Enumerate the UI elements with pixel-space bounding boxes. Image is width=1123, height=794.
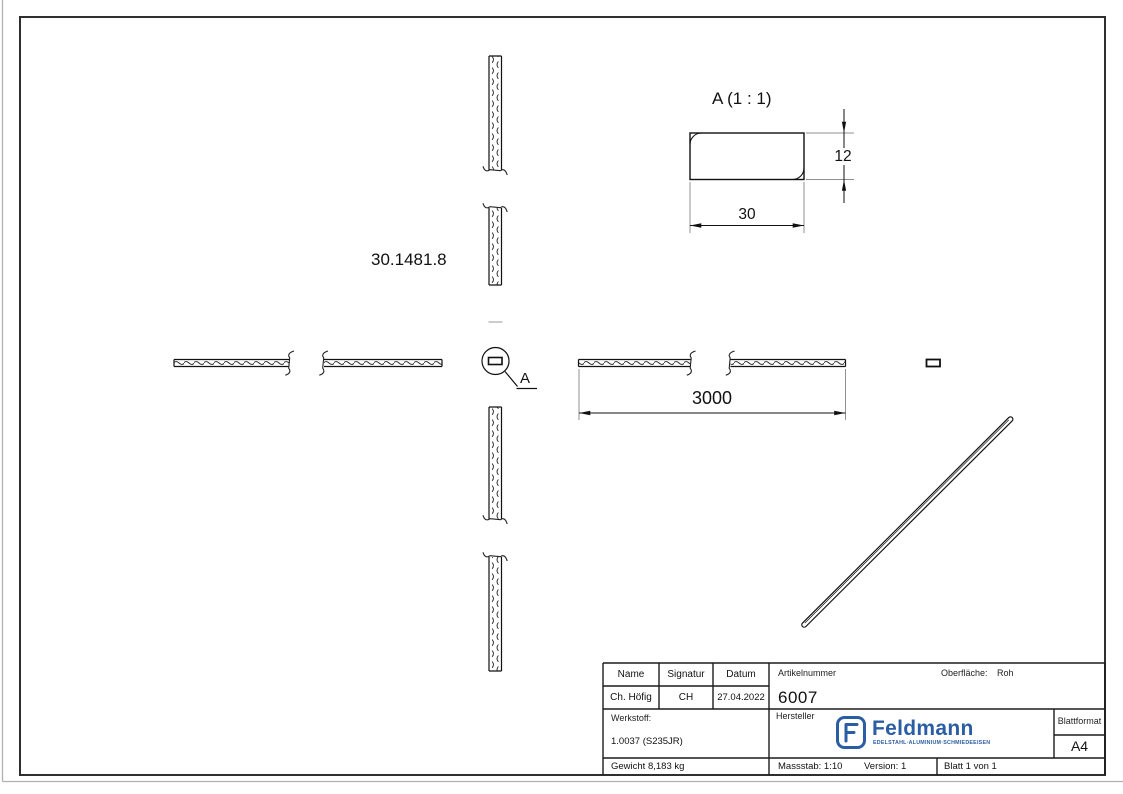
top-view-bar-upper bbox=[483, 56, 507, 285]
front-view-bar bbox=[579, 351, 846, 375]
drawing-frame bbox=[20, 17, 1105, 775]
sheet-format-value: A4 bbox=[1054, 739, 1105, 754]
end-view bbox=[927, 360, 941, 367]
weight-value: Gewicht 8,183 kg bbox=[611, 762, 684, 772]
brand-name: Feldmann bbox=[872, 717, 974, 740]
paper-edge bbox=[3, 0, 1123, 782]
detail-view-a bbox=[690, 109, 854, 233]
titleblock-signature-value: CH bbox=[659, 692, 713, 703]
titleblock-date-value: 27.04.2022 bbox=[713, 693, 769, 703]
drawing-sheet: 30.1481.8 A (1 : 1) 12 30 3000 A Name Si… bbox=[0, 0, 1123, 794]
material-value: 1.0037 (S235JR) bbox=[611, 737, 683, 747]
titleblock-header-date: Datum bbox=[713, 669, 769, 680]
page-value: Blatt 1 von 1 bbox=[944, 762, 997, 772]
dimension-width-30: 30 bbox=[735, 206, 759, 223]
sheet-format-label: Blattformat bbox=[1054, 717, 1105, 727]
detail-view-title: A (1 : 1) bbox=[712, 90, 772, 109]
feldmann-logo-icon bbox=[838, 718, 865, 748]
titleblock-name-value: Ch. Höfig bbox=[603, 692, 659, 703]
top-view-bar-lower bbox=[483, 407, 507, 671]
left-view-bar bbox=[174, 351, 442, 375]
surface-value: Roh bbox=[997, 669, 1014, 679]
scale-value: Massstab: 1:10 bbox=[778, 762, 842, 772]
detail-callout-label: A bbox=[520, 371, 530, 388]
dimension-length-3000: 3000 bbox=[688, 389, 736, 409]
material-label: Werkstoff: bbox=[611, 714, 651, 724]
dimension-height-12: 12 bbox=[831, 148, 855, 165]
part-number: 30.1481.8 bbox=[371, 251, 447, 270]
isometric-view bbox=[801, 416, 1014, 628]
version-value: Version: 1 bbox=[864, 762, 906, 772]
brand-tagline: EDELSTAHL·ALUMINIUM·SCHMIEDEEISEN bbox=[873, 741, 990, 747]
surface-label: Oberfläche: bbox=[941, 669, 988, 679]
article-number-value: 6007 bbox=[778, 689, 818, 708]
manufacturer-label: Hersteller bbox=[776, 712, 815, 722]
titleblock-header-signature: Signatur bbox=[659, 669, 713, 680]
article-number-label: Artikelnummer bbox=[778, 669, 836, 679]
titleblock-header-name: Name bbox=[603, 669, 659, 680]
